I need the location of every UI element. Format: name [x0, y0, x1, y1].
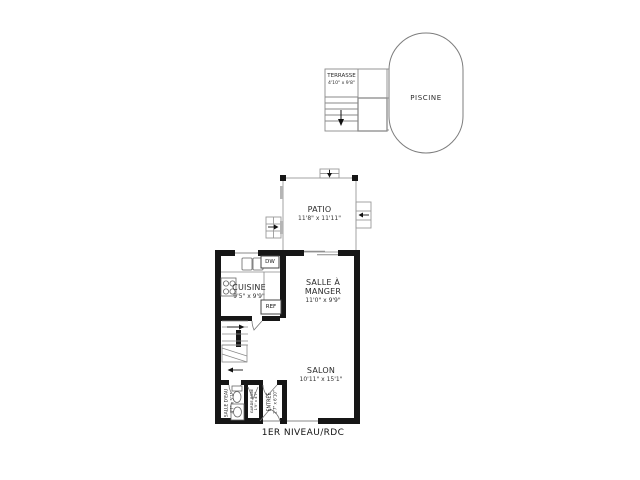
salon-label: SALON [288, 366, 354, 375]
salle-deau-dims: 4'7" x 5'1" [229, 393, 234, 414]
cuisine-label: CUISINE [219, 283, 279, 292]
entree-dims: 2'7" x 6'10" [272, 390, 277, 414]
salle-deau-label: SALLE D'EAU [224, 389, 229, 418]
patio-label: PATIO [283, 205, 356, 214]
dishwasher-label: DW [261, 259, 279, 265]
entree-label: ENTRÉE [266, 393, 271, 412]
salle-a-manger-dims: 11'0" x 9'9" [294, 298, 352, 305]
floor-plan-drawing [0, 0, 640, 480]
salon-dims: 10'11" x 15'1" [288, 377, 354, 384]
floor-caption: 1ER NIVEAU/RDC [235, 428, 371, 438]
terrasse-dims: 4'10" x 9'8" [325, 81, 358, 86]
cuisine-dims: 9'5" x 9'9" [219, 294, 279, 301]
pool-outline [389, 33, 463, 153]
stair-arrows [227, 325, 245, 373]
sink-icon [242, 258, 263, 270]
patio-dims: 11'8" x 11'11" [283, 216, 356, 223]
terrasse-stair-arrow [338, 110, 344, 126]
garde-robe-dims: 1'9" x 4'7" [254, 392, 258, 411]
floor-plan-page: PISCINE TERRASSE 4'10" x 9'8" PATIO 11'8… [0, 0, 640, 480]
refrigerator-label: REF [261, 304, 281, 310]
pool-label: PISCINE [389, 94, 463, 102]
terrasse-label: TERRASSE [325, 73, 358, 79]
salle-a-manger-label: SALLE À MANGER [294, 278, 352, 296]
